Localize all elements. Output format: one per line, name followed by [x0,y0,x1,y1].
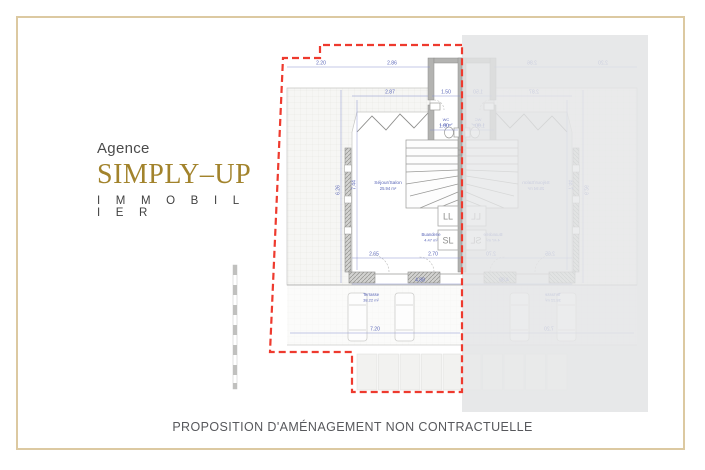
floor-plan: LL SL 2.20 2.86 [225,30,655,415]
mirrored-unit-overlay [462,35,648,412]
disclaimer-text: PROPOSITION D'AMÉNAGEMENT NON CONTRACTUE… [0,420,705,434]
survey-strip [233,265,237,389]
main-unit-plan [287,58,462,390]
